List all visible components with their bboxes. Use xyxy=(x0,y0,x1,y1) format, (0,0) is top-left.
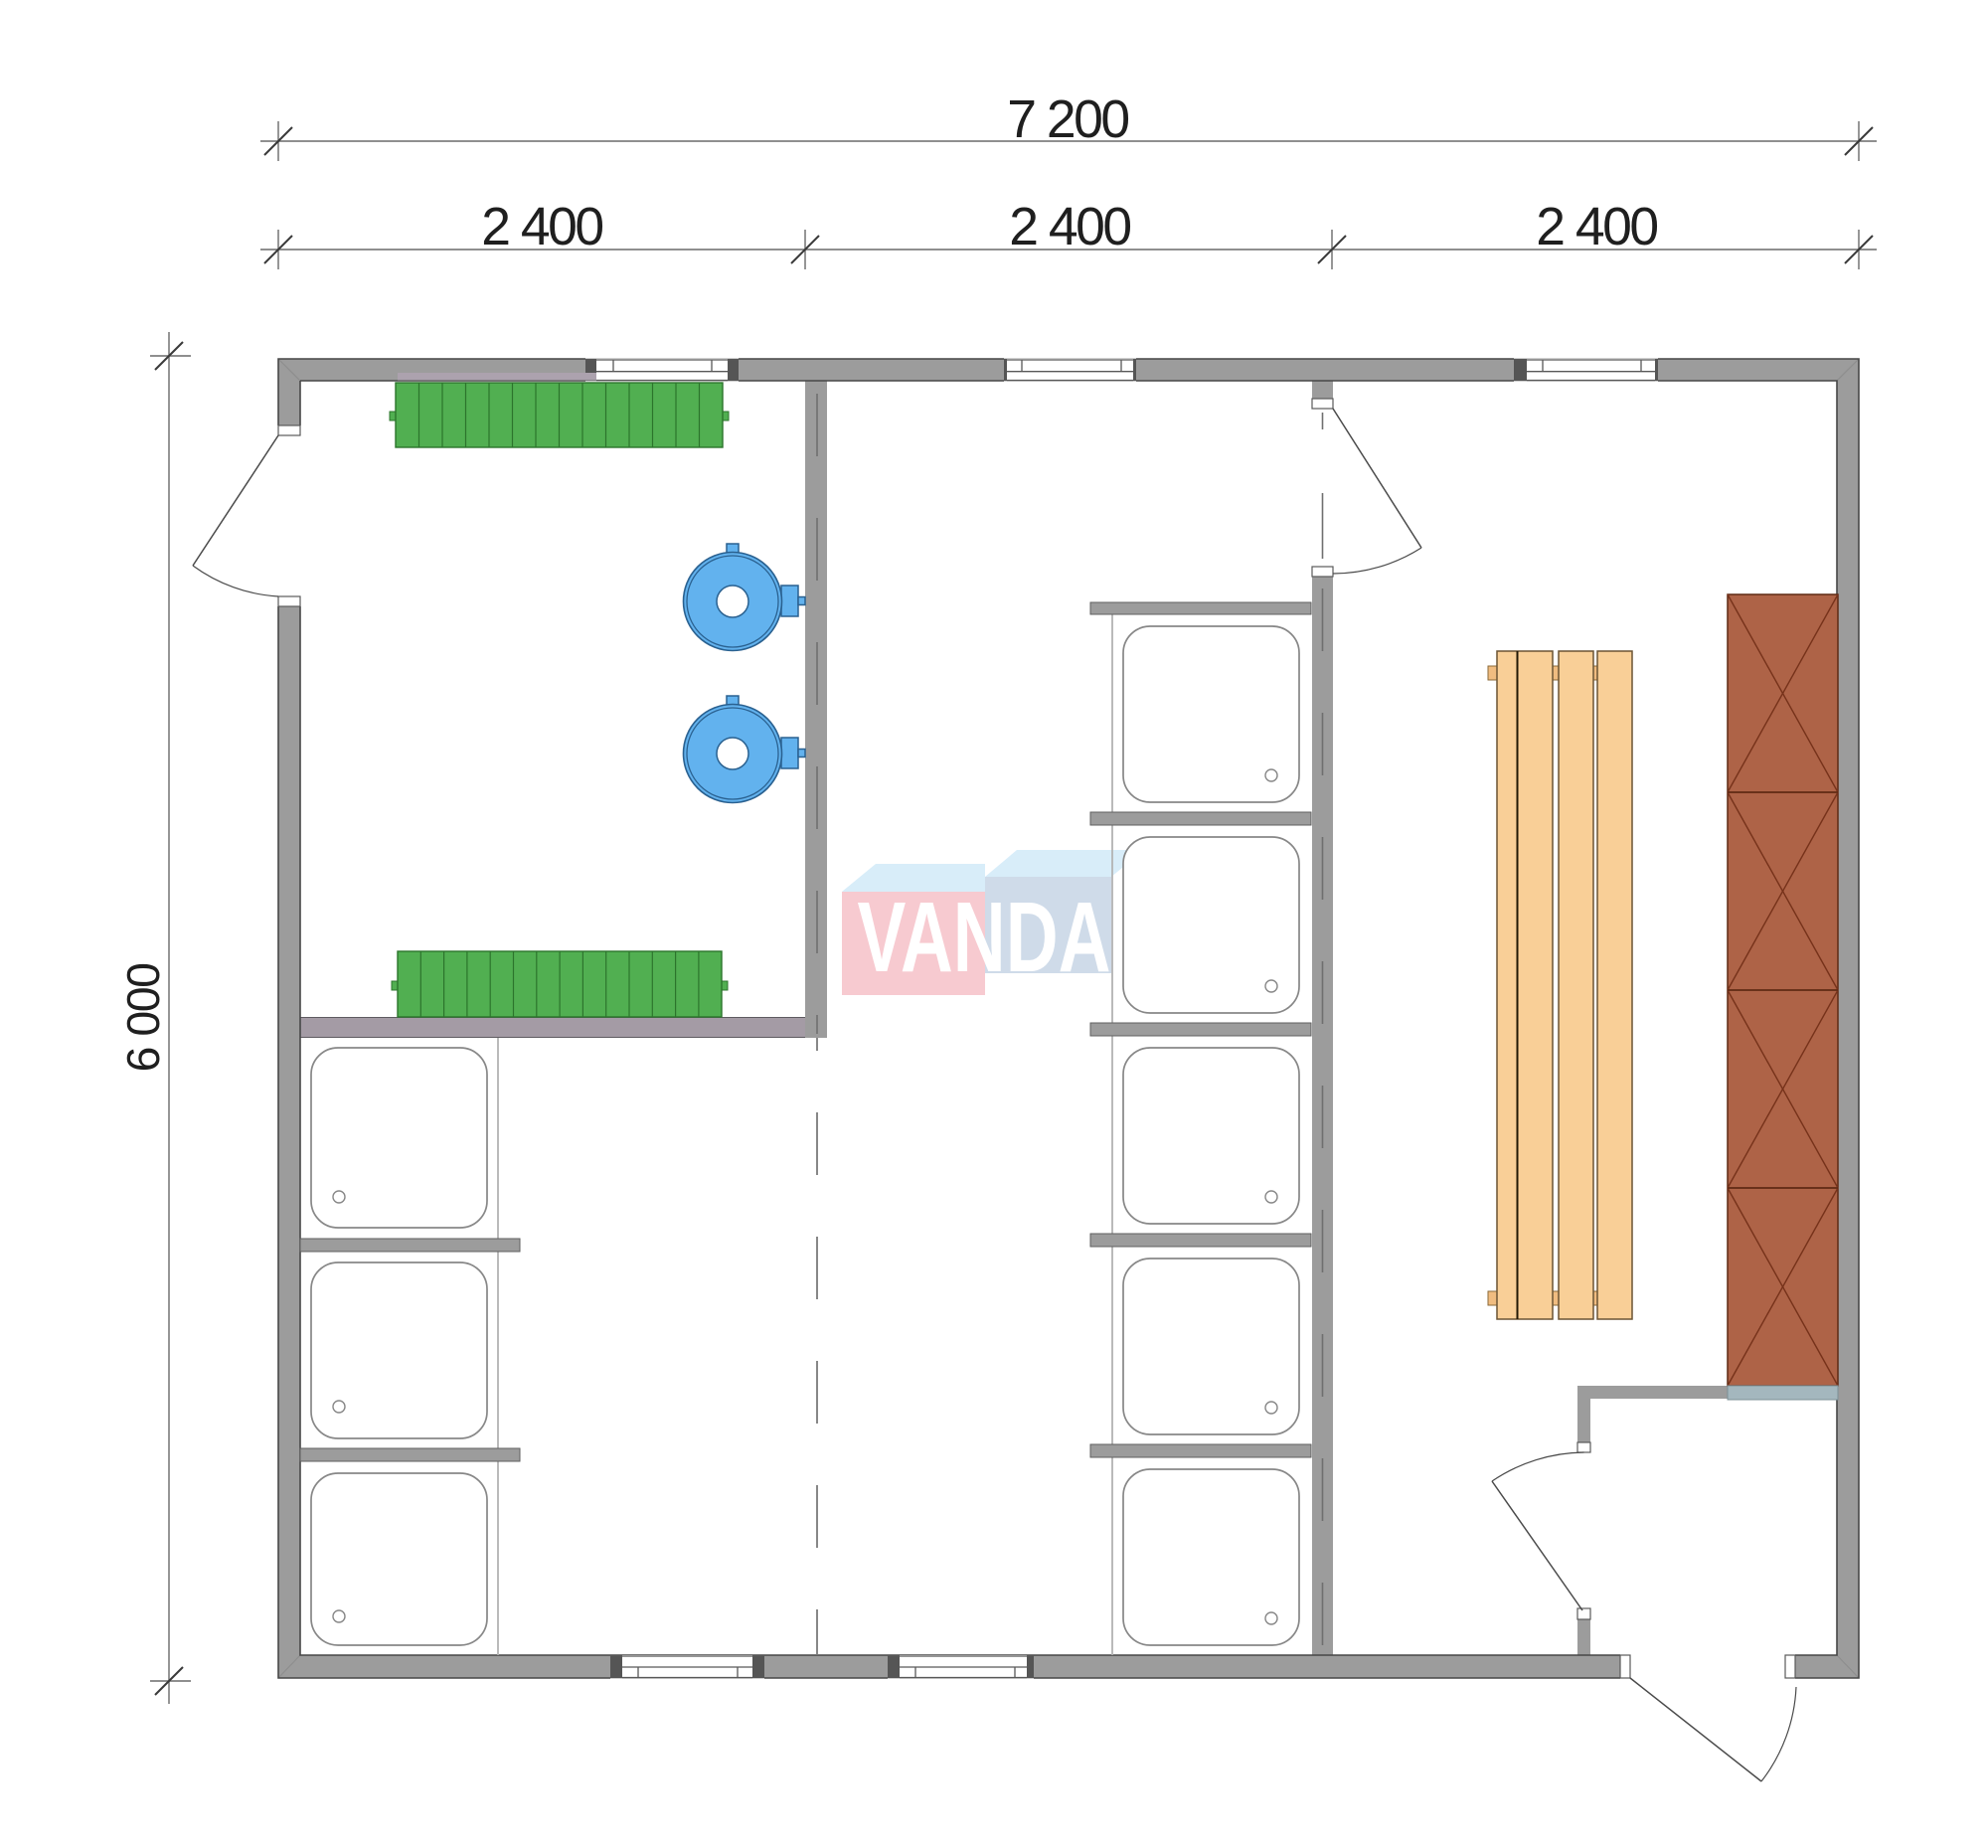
svg-text:2 400: 2 400 xyxy=(481,198,602,256)
svg-text:2 400: 2 400 xyxy=(1536,198,1657,256)
svg-text:2 400: 2 400 xyxy=(1009,198,1130,256)
svg-text:7 200: 7 200 xyxy=(1007,90,1128,149)
svg-text:VANDA: VANDA xyxy=(858,882,1111,993)
svg-text:6 000: 6 000 xyxy=(117,963,169,1073)
